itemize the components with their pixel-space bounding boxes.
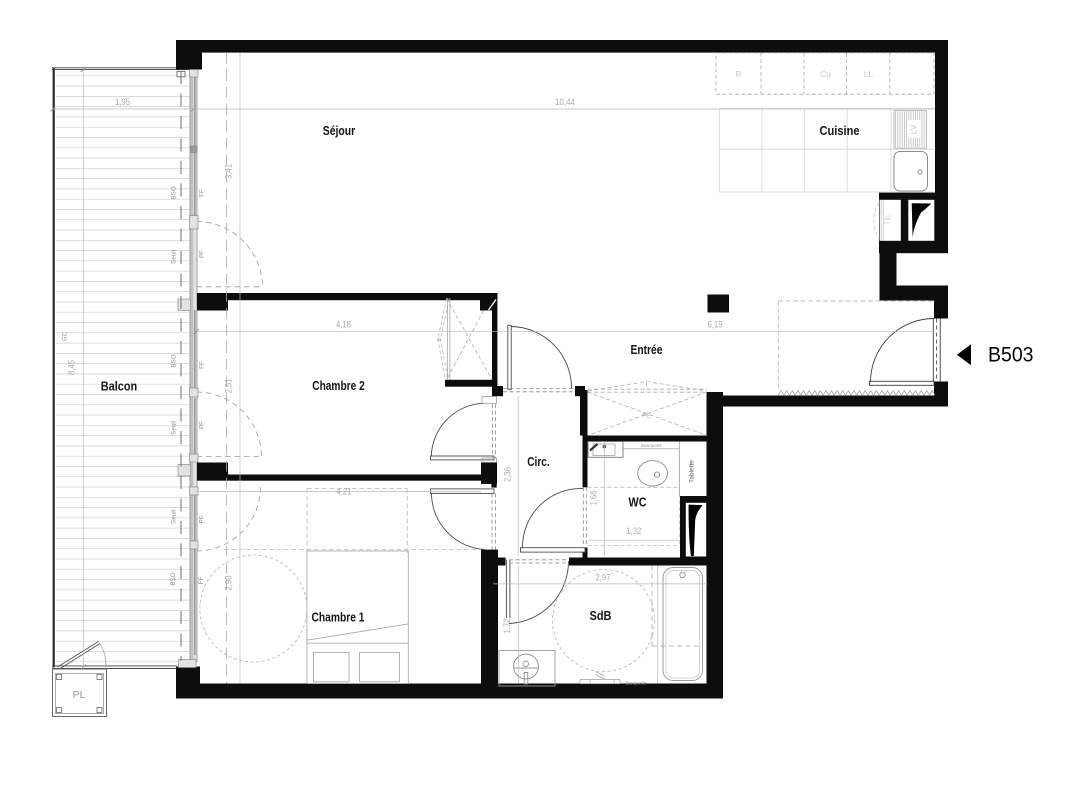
- svg-text:Chambre 2: Chambre 2: [312, 378, 365, 393]
- svg-text:R: R: [735, 69, 741, 79]
- svg-text:SdB: SdB: [590, 608, 612, 623]
- svg-text:FF: FF: [199, 189, 206, 197]
- svg-text:B503: B503: [988, 344, 1034, 367]
- svg-text:Cu: Cu: [820, 69, 831, 79]
- svg-text:8,45: 8,45: [67, 360, 78, 375]
- svg-text:TE: TE: [882, 214, 892, 225]
- svg-text:BSO: BSO: [171, 186, 178, 199]
- svg-text:6,19: 6,19: [708, 320, 723, 331]
- svg-text:Entrée: Entrée: [631, 342, 663, 357]
- svg-text:Seuil: Seuil: [171, 421, 178, 435]
- svg-text:4,21: 4,21: [337, 487, 352, 498]
- svg-text:Seuil: Seuil: [171, 510, 178, 524]
- svg-text:PF: PF: [199, 515, 206, 523]
- svg-text:Seuil: Seuil: [171, 250, 178, 264]
- svg-text:2,36: 2,36: [503, 467, 514, 482]
- svg-text:PE: PE: [642, 413, 650, 420]
- svg-text:Banquette: Banquette: [641, 443, 662, 448]
- svg-text:BSO: BSO: [170, 572, 177, 585]
- svg-text:PF: PF: [199, 250, 206, 258]
- svg-text:1,66: 1,66: [588, 491, 599, 506]
- svg-text:Tablette: Tablette: [689, 460, 696, 483]
- svg-text:1,72: 1,72: [502, 619, 513, 634]
- svg-text:PF: PF: [199, 421, 206, 429]
- svg-text:BSO: BSO: [171, 354, 178, 367]
- svg-text:2,90: 2,90: [224, 576, 235, 591]
- svg-text:1,95: 1,95: [115, 97, 130, 108]
- svg-text:Chambre 1: Chambre 1: [312, 610, 365, 625]
- svg-text:10,44: 10,44: [555, 97, 575, 108]
- svg-text:3,41: 3,41: [224, 164, 235, 179]
- svg-text:Cuisine: Cuisine: [820, 123, 860, 138]
- svg-text:GC: GC: [62, 331, 69, 341]
- svg-text:Banquette: Banquette: [626, 681, 647, 686]
- svg-text:FF: FF: [199, 361, 206, 369]
- svg-text:2,97: 2,97: [596, 573, 611, 584]
- svg-text:WC: WC: [629, 495, 647, 510]
- svg-text:Séjour: Séjour: [323, 123, 356, 138]
- svg-text:1,32: 1,32: [626, 526, 641, 537]
- svg-text:FF: FF: [198, 577, 205, 585]
- svg-text:LL: LL: [864, 69, 874, 79]
- svg-text:Circ.: Circ.: [527, 454, 550, 469]
- svg-text:Balcon: Balcon: [101, 379, 138, 394]
- svg-text:4,18: 4,18: [336, 320, 351, 331]
- svg-text:PL: PL: [73, 689, 86, 701]
- svg-text:2,51: 2,51: [224, 379, 235, 394]
- svg-text:LV: LV: [909, 124, 919, 134]
